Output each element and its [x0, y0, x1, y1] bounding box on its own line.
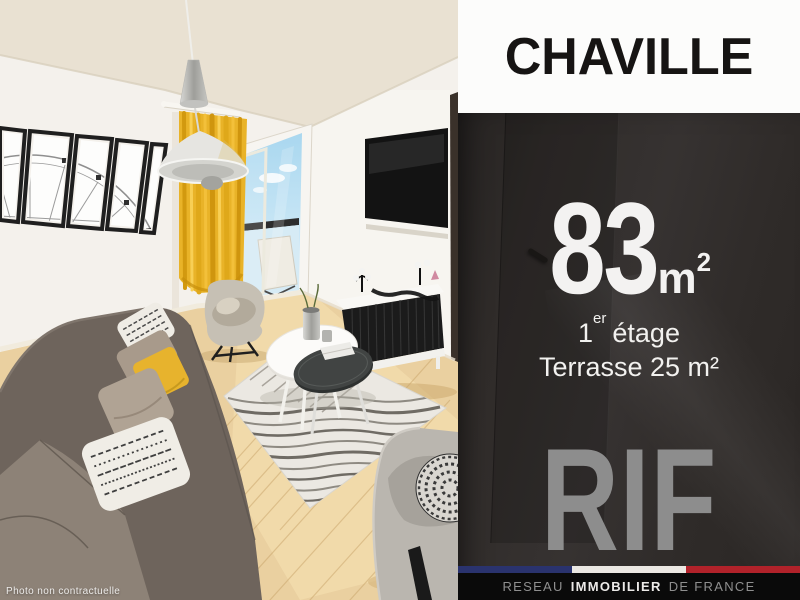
brand-name-part1: RESEAU: [502, 579, 563, 594]
area-exponent: 2: [697, 249, 710, 275]
area-unit: m: [658, 254, 696, 303]
brand-name-part2: IMMOBILIER: [571, 579, 662, 594]
floor-line: 1erétage: [458, 318, 800, 349]
floor-ordinal: er: [593, 310, 606, 327]
photo-disclaimer: Photo non contractuelle: [6, 586, 120, 597]
lounge-armchair: [368, 428, 458, 600]
floor-number: 1: [578, 318, 593, 348]
area-value: 83: [549, 183, 657, 313]
real-estate-flyer: Photo non contractuelle CHAVILLE 83m2 1e…: [0, 0, 800, 600]
brand-acronym: RIF: [502, 427, 755, 573]
apartment-photo: Photo non contractuelle: [0, 0, 458, 600]
city-name: CHAVILLE: [505, 27, 753, 87]
city-banner: CHAVILLE: [458, 0, 800, 113]
flag-stripe: [458, 566, 800, 573]
flag-white-segment: [572, 566, 686, 573]
details-panel: 83m2 1erétage Terrasse 25 m² RIF RESEAUI…: [458, 113, 800, 600]
brand-name-band: RESEAUIMMOBILIERDE FRANCE: [458, 573, 800, 600]
flag-blue-segment: [458, 566, 572, 573]
floor-label: étage: [612, 318, 680, 348]
living-room-scene: [0, 0, 458, 600]
terrace-line: Terrasse 25 m²: [458, 352, 800, 383]
flag-red-segment: [686, 566, 800, 573]
info-panel: CHAVILLE 83m2 1erétage Terrasse 25 m² RI…: [458, 0, 800, 600]
area-figure: 83m2: [458, 183, 800, 313]
brand-name-part3: DE FRANCE: [669, 579, 756, 594]
